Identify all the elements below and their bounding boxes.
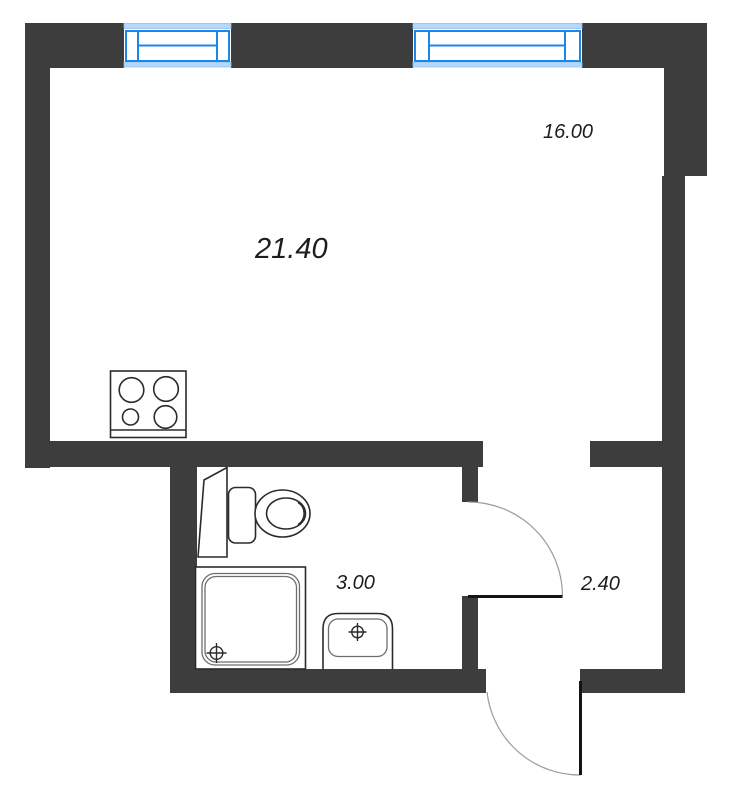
stove xyxy=(111,371,187,438)
toilet xyxy=(198,468,310,558)
bathroom-area-label: 3.00 xyxy=(336,572,375,594)
bathroom-door-jamb-top xyxy=(462,467,478,502)
hallway-area-label: 2.40 xyxy=(580,573,620,595)
door-swing-arc xyxy=(469,502,563,596)
toilet-tank xyxy=(229,488,256,544)
left-wall xyxy=(25,23,50,468)
window-sill-outer xyxy=(124,24,231,29)
living-area-label: 16.00 xyxy=(543,121,593,143)
window-left xyxy=(124,23,231,68)
burner-small xyxy=(123,409,139,425)
shower xyxy=(196,567,306,669)
bathroom-bottom-wall xyxy=(170,669,486,693)
bathroom-door xyxy=(468,502,563,597)
room-divider-wall-right xyxy=(590,441,664,467)
room-divider-wall-left xyxy=(25,441,483,467)
burner-large xyxy=(154,377,179,402)
sink xyxy=(323,614,393,670)
burner-large xyxy=(154,406,177,429)
sink-body xyxy=(323,614,393,670)
entry-door xyxy=(487,681,581,775)
bathroom-door-jamb-bottom xyxy=(462,596,478,669)
toilet-bowl-inner xyxy=(267,498,306,529)
window-sill-outer xyxy=(413,24,582,29)
door-swing-arc xyxy=(487,692,581,775)
burner-large xyxy=(119,378,144,403)
window-sill-inner xyxy=(124,62,231,67)
floor-plan: 21.40 16.00 3.00 2.40 xyxy=(0,0,737,800)
right-wall-lower xyxy=(662,176,685,693)
window-sill-inner xyxy=(413,62,582,67)
total-area-label: 21.40 xyxy=(254,233,328,265)
floor-plan-canvas: 21.40 16.00 3.00 2.40 xyxy=(0,0,737,800)
window-right xyxy=(413,23,582,68)
right-wall-upper xyxy=(664,23,707,176)
toilet-side-panel xyxy=(198,468,227,558)
bathroom-left-wall xyxy=(170,467,197,693)
hallway-bottom-wall xyxy=(580,669,685,693)
